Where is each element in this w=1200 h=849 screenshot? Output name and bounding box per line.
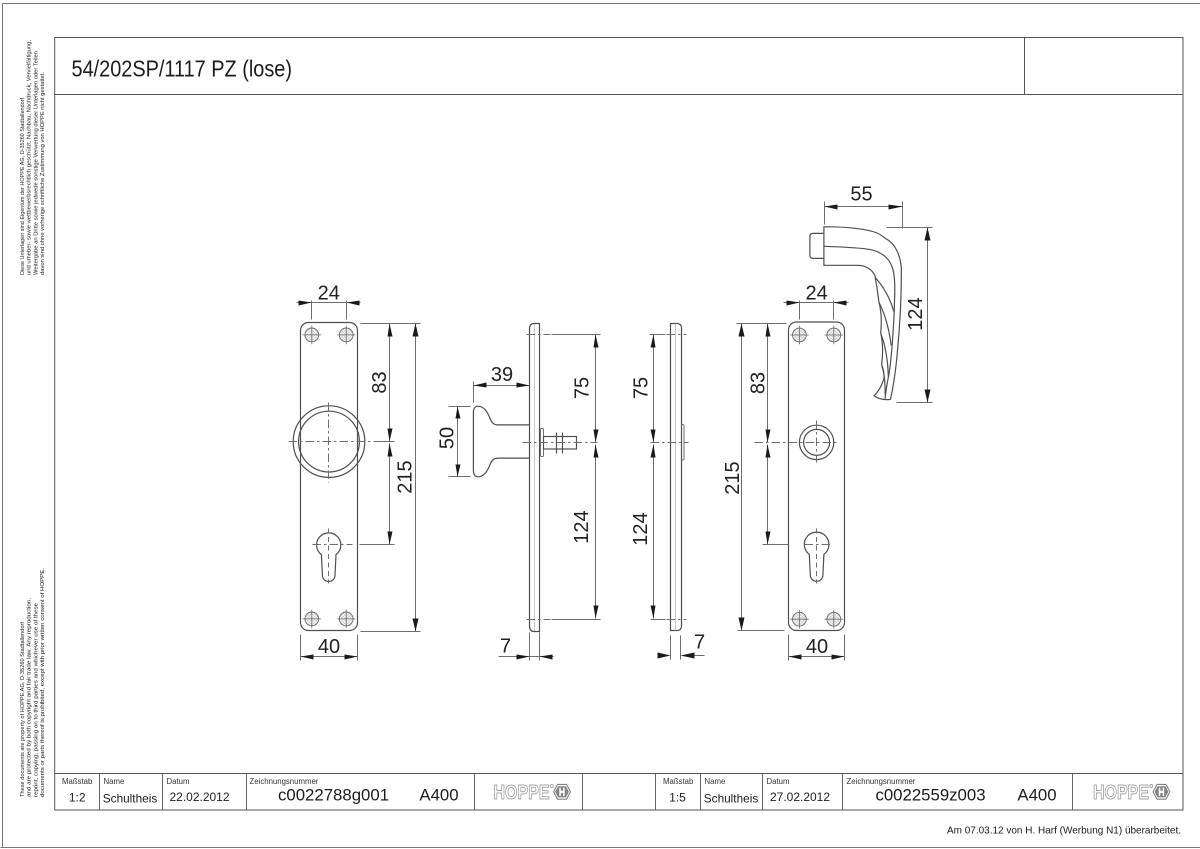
- svg-text:Maßstab: Maßstab: [62, 777, 93, 786]
- svg-text:A400: A400: [1017, 786, 1056, 805]
- svg-text:Am 07.03.12 von H. Harf (Werbu: Am 07.03.12 von H. Harf (Werbung N1) übe…: [947, 825, 1181, 837]
- svg-text:HOPPE: HOPPE: [1093, 782, 1149, 804]
- svg-text:c0022559z003: c0022559z003: [875, 786, 985, 805]
- svg-text:Datum: Datum: [767, 777, 790, 786]
- svg-text:HOPPE: HOPPE: [494, 782, 550, 804]
- svg-text:Name: Name: [705, 777, 726, 786]
- svg-text:1:5: 1:5: [669, 791, 686, 805]
- svg-text:40: 40: [806, 636, 828, 658]
- svg-text:1:2: 1:2: [69, 791, 86, 805]
- svg-text:reprint, copying, passing on t: reprint, copying, passing on to third pa…: [33, 603, 39, 797]
- svg-text:75: 75: [572, 377, 594, 399]
- svg-text:and are protected by both copy: and are protected by both copyright and …: [27, 598, 33, 797]
- svg-text:These documents are property o: These documents are property of HOPPE AG…: [20, 622, 26, 797]
- svg-text:75: 75: [630, 377, 652, 399]
- svg-text:Schultheis: Schultheis: [704, 792, 759, 806]
- svg-text:7: 7: [694, 632, 705, 654]
- svg-text:215: 215: [722, 461, 744, 494]
- svg-text:c0022788g001: c0022788g001: [278, 786, 389, 805]
- svg-text:55: 55: [850, 184, 872, 206]
- svg-text:Maßstab: Maßstab: [663, 777, 694, 786]
- svg-text:Datum: Datum: [167, 777, 190, 786]
- svg-text:124: 124: [571, 510, 593, 543]
- svg-text:A400: A400: [419, 786, 458, 805]
- svg-text:27.02.2012: 27.02.2012: [770, 790, 830, 804]
- svg-text:124: 124: [630, 512, 652, 545]
- svg-text:83: 83: [747, 372, 769, 394]
- svg-text:Diese Unterlagen sind Eigentum: Diese Unterlagen sind Eigentum der HOPPE…: [20, 98, 26, 275]
- svg-text:24: 24: [318, 282, 340, 304]
- svg-text:24: 24: [805, 282, 827, 304]
- svg-text:und urheber- sowie wettbewerbs: und urheber- sowie wettbewerbsrechtlich …: [27, 40, 33, 275]
- svg-text:22.02.2012: 22.02.2012: [169, 790, 229, 804]
- svg-text:50: 50: [437, 427, 459, 449]
- svg-text:Weitergabe an Dritte sowie jed: Weitergabe an Dritte sowie jedwede sonst…: [33, 51, 39, 275]
- svg-text:Name: Name: [104, 777, 125, 786]
- svg-text:Schultheis: Schultheis: [103, 792, 158, 806]
- svg-text:7: 7: [500, 636, 511, 658]
- svg-text:124: 124: [905, 297, 927, 330]
- svg-text:39: 39: [491, 364, 513, 386]
- svg-text:54/202SP/1117 PZ (lose): 54/202SP/1117 PZ (lose): [72, 56, 293, 82]
- svg-text:documents or parts thereof is: documents or parts thereof is prohibited…: [40, 568, 46, 797]
- svg-text:40: 40: [318, 636, 340, 658]
- svg-text:215: 215: [395, 460, 417, 493]
- svg-text:83: 83: [369, 371, 391, 393]
- svg-text:davon sind ohne vorherige schr: davon sind ohne vorherige schriftliche Z…: [40, 72, 46, 275]
